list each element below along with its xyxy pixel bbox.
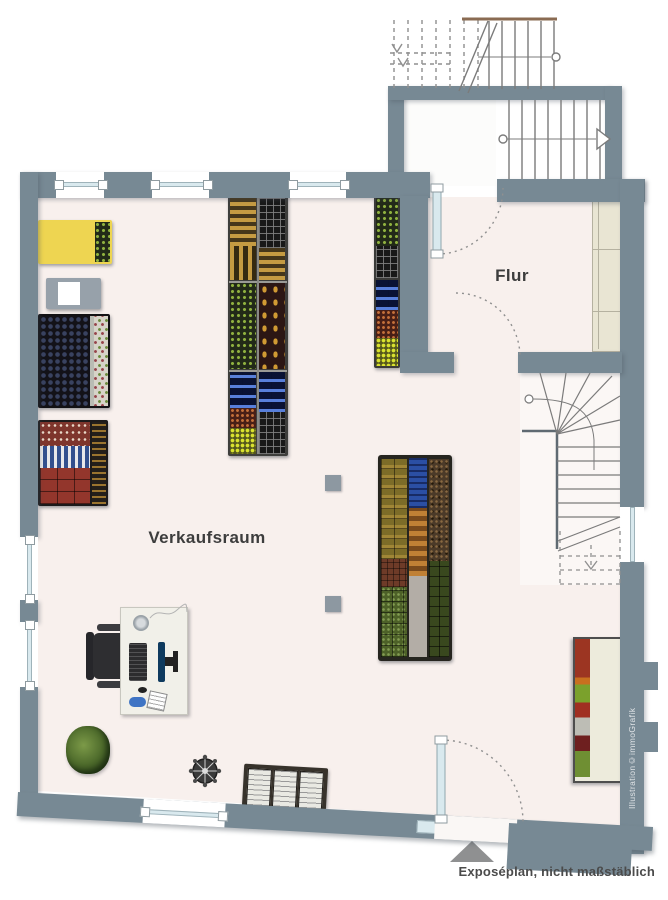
shelf-products [381, 459, 407, 559]
entrance-arrow-icon [450, 841, 494, 862]
shelf-products [94, 316, 108, 406]
mouse [138, 687, 147, 693]
window-cap [54, 180, 64, 190]
window-cap [98, 180, 108, 190]
shelf-products [230, 283, 256, 369]
shelf-single [374, 196, 400, 368]
entrance-opening [434, 815, 517, 843]
floor-interior-stair [520, 373, 622, 585]
table-top [58, 282, 80, 305]
display-print [272, 769, 298, 808]
room-label-flur: Flur [472, 266, 552, 286]
footer-note: Exposéplan, nicht maßstäblich [458, 864, 655, 879]
window-cap [25, 594, 35, 604]
shelf-products [381, 559, 407, 587]
watermark-text: Illustration©immoGrafik [622, 686, 642, 831]
wall-stairwell-right [605, 86, 622, 186]
wall-left-lower [20, 687, 38, 797]
floor-plan: Verkaufsraum Flur Exposéplan, nicht maßs… [0, 0, 668, 900]
shelf-products [376, 280, 398, 310]
yellow-display-unit [38, 220, 112, 264]
window-cap [288, 180, 298, 190]
window-glass [630, 507, 635, 562]
wall-flur-horizontal-a [400, 352, 454, 373]
shelf-products [376, 338, 398, 366]
window-cap [25, 620, 35, 630]
window-glass [27, 622, 32, 687]
window-cap [25, 681, 35, 691]
window-glass [152, 182, 209, 187]
shelf-products [40, 468, 90, 504]
phone [129, 697, 146, 707]
window-cap [218, 811, 229, 822]
display-print [246, 768, 272, 807]
window-cap [203, 180, 213, 190]
shelf-products [230, 196, 256, 246]
wall-left-upper [20, 172, 38, 537]
window-top-2 [152, 172, 209, 198]
shelf-products [575, 639, 590, 777]
shelf-products [230, 246, 256, 280]
shelf-products [230, 428, 256, 454]
window-right [620, 507, 644, 562]
display-print [298, 771, 324, 810]
produce-shelf [573, 637, 625, 783]
window-cap [340, 180, 350, 190]
wall-stairwell-middle [388, 86, 610, 100]
shelf-products [92, 422, 106, 504]
shelf-row-middle [228, 194, 288, 456]
wall-flur-horizontal-b [518, 352, 622, 373]
shelf-divider [257, 196, 259, 454]
stairs-lower-flight [499, 100, 610, 179]
support-column [325, 475, 341, 491]
desk [120, 607, 188, 715]
shelf-products [429, 561, 449, 657]
support-column [325, 596, 341, 612]
shelf-products [40, 316, 90, 406]
gondola-shelf [378, 455, 452, 661]
shelf-products [259, 412, 285, 454]
wall-flur-vertical [400, 196, 428, 355]
window-top-3 [290, 172, 346, 198]
notepad [146, 690, 167, 711]
shelf-products [376, 198, 398, 246]
shelf-products [376, 246, 398, 278]
shelf-products [259, 196, 285, 248]
shelf-products [259, 248, 285, 280]
window-bottom [142, 799, 225, 827]
gondola-aisle [409, 576, 427, 657]
monitor [158, 642, 165, 682]
shelf-products [40, 422, 90, 446]
cabinet-line [598, 199, 599, 349]
shelf-products [259, 372, 285, 412]
window-cap [150, 180, 160, 190]
wall-stairwell-left [388, 86, 404, 186]
window-top-1 [56, 172, 104, 198]
window-glass [290, 182, 346, 187]
window-left-2 [20, 622, 38, 687]
desk-lamp [133, 615, 149, 631]
crate-shelf-left [38, 420, 108, 506]
keyboard [129, 643, 147, 681]
window-cap [140, 807, 151, 818]
shelf-products [259, 283, 285, 369]
small-table-unit [46, 278, 101, 309]
shelf-products [230, 372, 256, 408]
stairs-upper-solid [459, 19, 560, 93]
shelf-products [230, 408, 256, 428]
shelf-products [95, 222, 110, 262]
shelf-products [409, 458, 427, 508]
shelf-products [381, 587, 407, 657]
wall-right-pilaster-2 [644, 722, 658, 752]
window-left-1 [20, 537, 38, 600]
window-glass [27, 537, 32, 600]
plant [66, 726, 110, 774]
shelf-products [376, 310, 398, 338]
wall-right-pilaster-1 [644, 662, 658, 690]
window-glass [145, 809, 223, 818]
shelf-products [40, 446, 90, 468]
wine-bottle-shelf [38, 314, 110, 408]
room-label-verkaufsraum: Verkaufsraum [122, 528, 292, 548]
monitor-base [173, 651, 178, 672]
stairs-upper-dashed [390, 20, 478, 88]
shelf-products [429, 459, 449, 561]
shelf-products [409, 508, 427, 576]
wall-right-upper [620, 179, 644, 507]
window-cap [25, 535, 35, 545]
